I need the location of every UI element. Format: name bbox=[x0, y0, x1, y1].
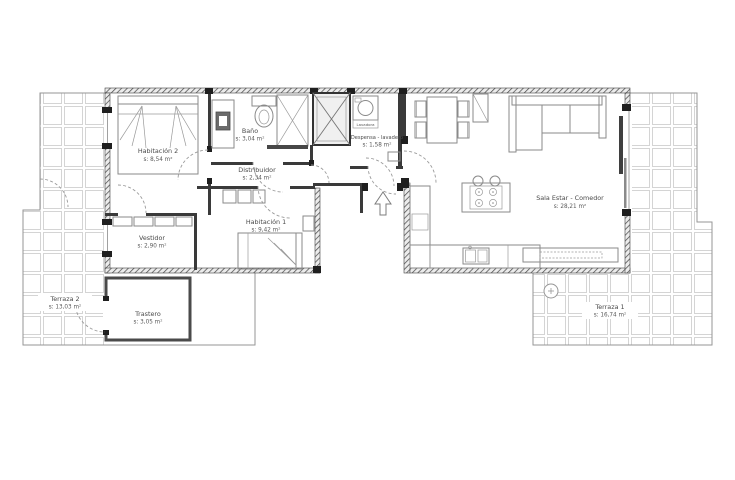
wall-bano-bottom-b bbox=[283, 162, 313, 165]
svg-text:Habitación 1: Habitación 1 bbox=[246, 218, 286, 226]
terrace-1-tiles-mid bbox=[632, 222, 712, 273]
terrace-2-tiles-lower bbox=[23, 210, 105, 345]
svg-text:Habitación 2: Habitación 2 bbox=[138, 147, 178, 155]
door-jamb bbox=[622, 104, 631, 111]
svg-text:s: 16,74 m²: s: 16,74 m² bbox=[594, 312, 627, 319]
sliding-panel bbox=[619, 116, 623, 174]
wall-hab2-bano-lower bbox=[208, 180, 211, 215]
wall-vestidor-right bbox=[194, 213, 197, 270]
svg-text:Trastero: Trastero bbox=[134, 310, 161, 318]
svg-text:s: 9,42 m²: s: 9,42 m² bbox=[252, 227, 281, 234]
drain-icon bbox=[544, 284, 558, 298]
shaft bbox=[313, 93, 350, 145]
window-jamb bbox=[102, 219, 112, 225]
wall-hab1-top-a bbox=[197, 186, 258, 189]
wall-bano-bottom-a bbox=[211, 162, 253, 165]
svg-text:Despensa - lavadero: Despensa - lavadero bbox=[351, 135, 403, 141]
wall-despensa-bottom-a bbox=[350, 166, 368, 169]
wall-hab2-bano-upper bbox=[208, 93, 211, 150]
window-jamb bbox=[102, 143, 112, 149]
terrace-1-tiles-upper bbox=[632, 93, 697, 222]
window-jamb bbox=[102, 251, 112, 257]
svg-text:Sala Estar - Comedor: Sala Estar - Comedor bbox=[536, 194, 604, 202]
trastero-door-gap bbox=[103, 301, 109, 330]
wall-right-lower bbox=[625, 210, 630, 273]
label-distribuidor: Distribuidor s: 2,34 m² bbox=[238, 166, 276, 182]
svg-text:s: 2,90 m²: s: 2,90 m² bbox=[138, 243, 167, 250]
svg-text:s: 28,21 m²: s: 28,21 m² bbox=[554, 203, 587, 210]
wall-entry-porch-top bbox=[313, 183, 363, 186]
svg-text:s: 3,04 m²: s: 3,04 m² bbox=[236, 136, 265, 143]
svg-text:Baño: Baño bbox=[242, 127, 258, 135]
svg-text:s: 1,58 m²: s: 1,58 m² bbox=[363, 142, 392, 149]
wall-hab1-right bbox=[315, 188, 320, 273]
label-terraza1: Terraza 1 s: 16,74 m² bbox=[582, 302, 638, 319]
wall-living-left bbox=[404, 183, 410, 273]
door-jamb bbox=[622, 209, 631, 216]
window-vestidor bbox=[104, 225, 112, 251]
shower-screen bbox=[267, 145, 308, 149]
label-terraza2: Terraza 2 s: 13,03 m² bbox=[38, 294, 92, 311]
floorplan-canvas: Lavadora bbox=[0, 0, 735, 480]
svg-text:Distribuidor: Distribuidor bbox=[238, 166, 276, 174]
label-vestidor: Vestidor s: 2,90 m² bbox=[138, 234, 167, 250]
apartment-floor bbox=[105, 88, 630, 273]
svg-text:s: 2,34 m²: s: 2,34 m² bbox=[243, 175, 272, 182]
lavadora-label: Lavadora bbox=[356, 122, 375, 127]
floorplan-drawing: Lavadora bbox=[0, 0, 735, 480]
svg-text:s: 13,03 m²: s: 13,03 m² bbox=[49, 304, 82, 311]
sliding-panel bbox=[624, 158, 627, 208]
svg-text:s: 3,05 m²: s: 3,05 m² bbox=[134, 319, 163, 326]
wall-bottom-living bbox=[410, 268, 630, 273]
window-jamb bbox=[102, 107, 112, 113]
wall-top bbox=[105, 88, 630, 93]
window-habitacion2 bbox=[104, 113, 112, 143]
svg-text:Terraza 2: Terraza 2 bbox=[49, 295, 79, 303]
wall-vestidor-top-a bbox=[105, 213, 118, 216]
svg-text:Vestidor: Vestidor bbox=[139, 234, 165, 242]
terrace-2-tiles-upper bbox=[40, 93, 105, 210]
svg-text:s: 8,54 m²: s: 8,54 m² bbox=[144, 156, 173, 163]
wall-vestidor-top-b bbox=[146, 213, 197, 216]
wall-despensa-bottom-b bbox=[396, 166, 403, 169]
label-trastero: Trastero s: 3,05 m² bbox=[134, 310, 163, 326]
label-habitacion1: Habitación 1 s: 9,42 m² bbox=[246, 218, 286, 234]
wall-hab1-top-b bbox=[290, 186, 315, 189]
svg-text:Terraza 1: Terraza 1 bbox=[594, 303, 624, 311]
